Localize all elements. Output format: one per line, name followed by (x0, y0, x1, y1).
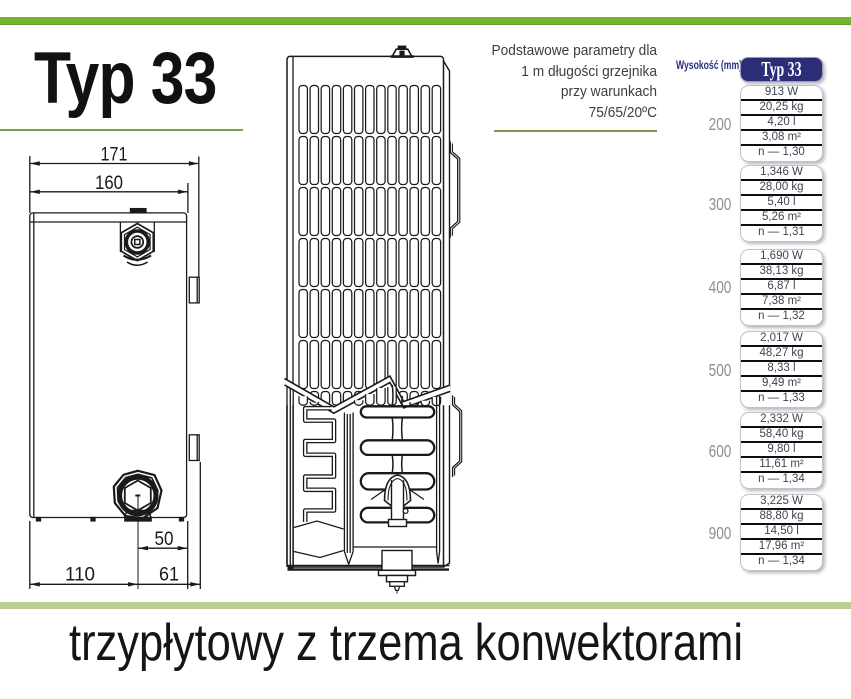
svg-text:50: 50 (155, 528, 174, 550)
svg-text:61: 61 (159, 564, 179, 586)
svg-text:110: 110 (65, 564, 95, 586)
svg-text:160: 160 (95, 172, 123, 194)
svg-text:171: 171 (101, 144, 128, 166)
